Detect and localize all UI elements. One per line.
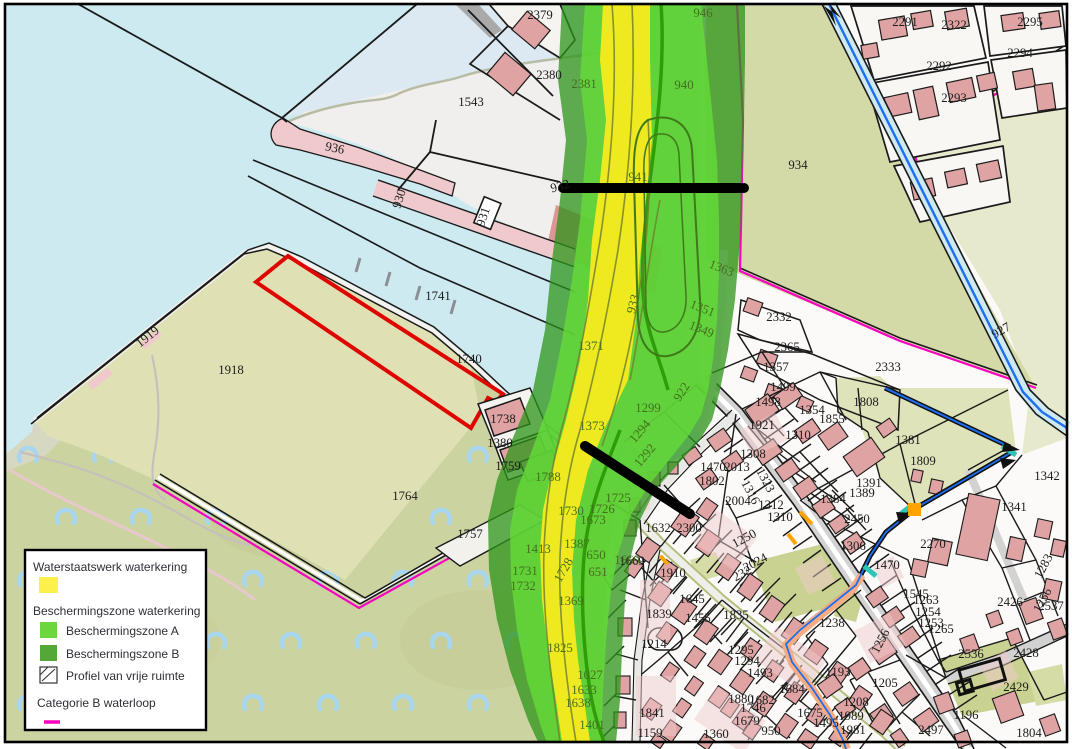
svg-text:1730: 1730 bbox=[558, 504, 584, 518]
svg-text:1310: 1310 bbox=[785, 428, 811, 442]
svg-text:1682: 1682 bbox=[749, 693, 775, 707]
svg-text:1470: 1470 bbox=[874, 558, 900, 572]
svg-text:2381: 2381 bbox=[571, 77, 597, 91]
svg-text:1384: 1384 bbox=[820, 492, 846, 506]
svg-text:2013: 2013 bbox=[724, 460, 750, 474]
svg-text:1214: 1214 bbox=[641, 637, 667, 651]
svg-text:2270: 2270 bbox=[920, 537, 946, 551]
svg-text:1493: 1493 bbox=[747, 666, 773, 680]
svg-text:1669: 1669 bbox=[614, 553, 640, 567]
svg-text:1545: 1545 bbox=[903, 587, 929, 601]
svg-text:2428: 2428 bbox=[1013, 646, 1039, 660]
svg-text:1679: 1679 bbox=[734, 714, 760, 728]
svg-text:1306: 1306 bbox=[840, 539, 866, 553]
svg-text:1389: 1389 bbox=[849, 486, 875, 500]
svg-text:941: 941 bbox=[628, 170, 647, 184]
svg-text:Beschermingszone B: Beschermingszone B bbox=[66, 647, 179, 661]
svg-text:950: 950 bbox=[761, 724, 780, 738]
svg-text:1357: 1357 bbox=[763, 360, 789, 374]
svg-text:1543: 1543 bbox=[458, 95, 484, 109]
svg-text:1369: 1369 bbox=[558, 594, 584, 608]
svg-text:1764: 1764 bbox=[392, 489, 418, 503]
svg-text:2365: 2365 bbox=[774, 340, 800, 354]
svg-text:1238: 1238 bbox=[819, 616, 845, 630]
svg-text:1839: 1839 bbox=[646, 607, 672, 621]
svg-text:1981: 1981 bbox=[840, 723, 866, 737]
svg-text:940: 940 bbox=[674, 78, 693, 92]
svg-text:1855: 1855 bbox=[819, 412, 845, 426]
svg-text:Categorie B waterloop: Categorie B waterloop bbox=[37, 696, 156, 710]
svg-text:1027: 1027 bbox=[577, 668, 603, 682]
svg-text:2294: 2294 bbox=[1007, 46, 1033, 60]
svg-text:1381: 1381 bbox=[895, 433, 921, 447]
svg-text:1841: 1841 bbox=[639, 706, 665, 720]
svg-text:2333: 2333 bbox=[875, 360, 901, 374]
svg-text:1638: 1638 bbox=[565, 696, 591, 710]
svg-text:1759: 1759 bbox=[495, 459, 521, 473]
svg-text:1413: 1413 bbox=[525, 542, 551, 556]
svg-text:1910: 1910 bbox=[660, 566, 686, 580]
svg-text:Beschermingszone A: Beschermingszone A bbox=[66, 624, 179, 638]
svg-text:2429: 2429 bbox=[1003, 680, 1029, 694]
svg-text:1632: 1632 bbox=[645, 521, 671, 535]
svg-text:1341: 1341 bbox=[1001, 500, 1027, 514]
svg-text:2291: 2291 bbox=[892, 15, 918, 29]
svg-text:2300: 2300 bbox=[676, 521, 702, 535]
svg-text:1918: 1918 bbox=[218, 363, 244, 377]
svg-text:2380: 2380 bbox=[536, 68, 562, 82]
svg-text:1757: 1757 bbox=[457, 527, 483, 541]
svg-text:1808: 1808 bbox=[853, 395, 879, 409]
svg-text:1208: 1208 bbox=[843, 695, 869, 709]
svg-text:2497: 2497 bbox=[918, 723, 944, 737]
svg-text:1731: 1731 bbox=[512, 564, 538, 578]
svg-text:2293: 2293 bbox=[941, 91, 967, 105]
svg-text:1299: 1299 bbox=[635, 401, 661, 415]
svg-text:651: 651 bbox=[588, 565, 607, 579]
svg-text:2379: 2379 bbox=[527, 8, 553, 22]
svg-text:2292: 2292 bbox=[926, 59, 952, 73]
svg-text:2426: 2426 bbox=[997, 595, 1023, 609]
svg-text:1401: 1401 bbox=[579, 718, 605, 732]
svg-text:1788: 1788 bbox=[535, 470, 561, 484]
svg-text:2450: 2450 bbox=[844, 512, 870, 526]
svg-text:1371: 1371 bbox=[578, 339, 604, 353]
svg-text:1310: 1310 bbox=[767, 510, 793, 524]
svg-text:1360: 1360 bbox=[703, 727, 729, 741]
svg-text:1825: 1825 bbox=[547, 641, 573, 655]
svg-text:1809: 1809 bbox=[910, 454, 936, 468]
svg-text:1802: 1802 bbox=[699, 474, 725, 488]
svg-text:1645: 1645 bbox=[679, 592, 705, 606]
svg-text:1498: 1498 bbox=[755, 395, 781, 409]
svg-text:1342: 1342 bbox=[1034, 469, 1060, 483]
svg-text:1673: 1673 bbox=[580, 513, 606, 527]
svg-text:1835: 1835 bbox=[723, 608, 749, 622]
svg-text:1633: 1633 bbox=[571, 683, 597, 697]
svg-text:1380: 1380 bbox=[487, 436, 513, 450]
svg-text:Profiel van vrije ruimte: Profiel van vrije ruimte bbox=[66, 669, 185, 683]
svg-text:1989: 1989 bbox=[838, 709, 864, 723]
svg-text:1499: 1499 bbox=[770, 380, 796, 394]
svg-text:1373: 1373 bbox=[579, 419, 605, 433]
svg-text:934: 934 bbox=[788, 158, 808, 172]
svg-text:1470: 1470 bbox=[700, 460, 726, 474]
svg-text:1921: 1921 bbox=[749, 418, 775, 432]
svg-text:946: 946 bbox=[693, 6, 713, 20]
svg-text:1732: 1732 bbox=[510, 579, 536, 593]
svg-text:1455: 1455 bbox=[685, 611, 711, 625]
svg-text:Beschermingszone waterkering: Beschermingszone waterkering bbox=[33, 604, 200, 618]
svg-text:1684: 1684 bbox=[779, 682, 805, 696]
svg-text:1159: 1159 bbox=[637, 726, 662, 740]
svg-text:1196: 1196 bbox=[953, 708, 979, 722]
svg-text:1741: 1741 bbox=[425, 289, 451, 303]
svg-text:650: 650 bbox=[586, 548, 605, 562]
svg-text:2295: 2295 bbox=[1017, 15, 1043, 29]
svg-text:1495: 1495 bbox=[813, 716, 839, 730]
svg-text:1193: 1193 bbox=[825, 665, 850, 679]
svg-text:1804: 1804 bbox=[1016, 726, 1042, 740]
svg-text:1740: 1740 bbox=[456, 352, 482, 366]
svg-text:1308: 1308 bbox=[740, 447, 766, 461]
svg-text:1265: 1265 bbox=[928, 622, 954, 636]
svg-text:2332: 2332 bbox=[766, 310, 792, 324]
svg-text:Waterstaatswerk waterkering: Waterstaatswerk waterkering bbox=[33, 560, 187, 574]
svg-text:1205: 1205 bbox=[872, 676, 898, 690]
svg-text:1738: 1738 bbox=[490, 412, 516, 426]
svg-text:2536: 2536 bbox=[958, 647, 984, 661]
svg-text:2322: 2322 bbox=[941, 18, 967, 32]
